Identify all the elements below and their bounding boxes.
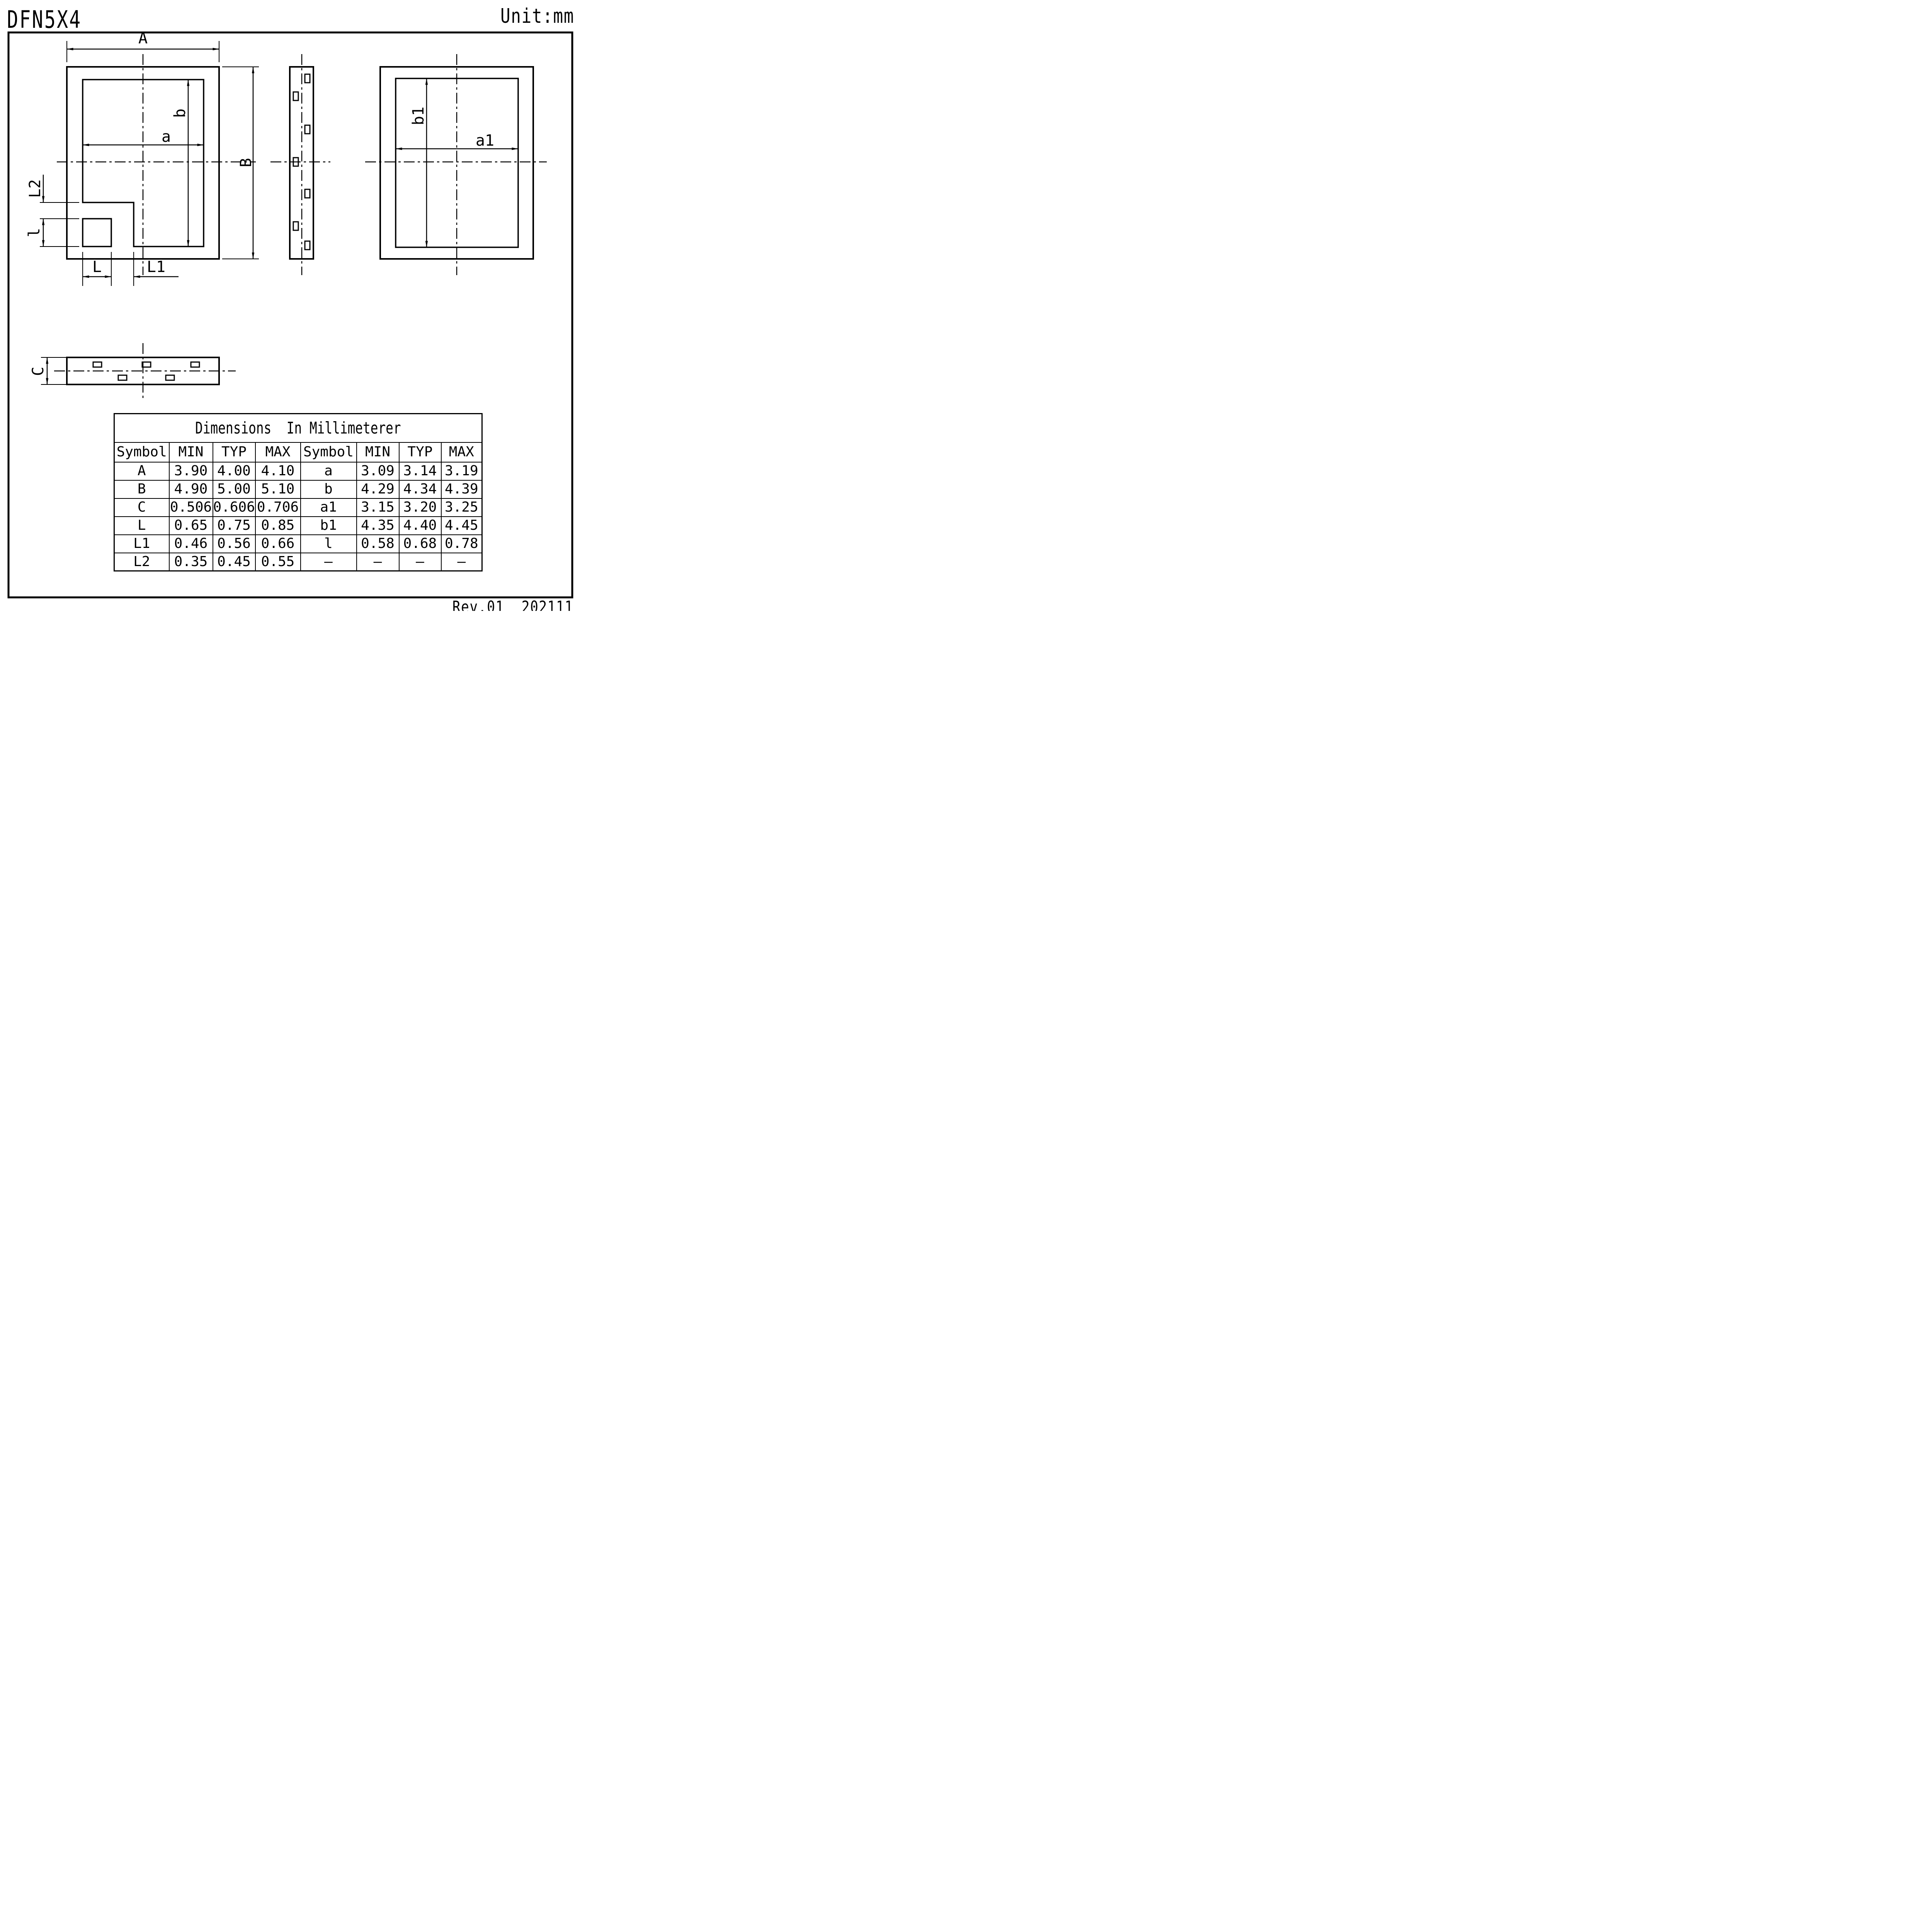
- table-cell: 0.45: [213, 553, 255, 571]
- terminal-pad: [305, 241, 310, 250]
- dimensions-table: Dimensions In Millimeterer Symbol MIN TY…: [114, 413, 481, 571]
- table-cell: 3.19: [441, 462, 482, 480]
- col-header-symbol: Symbol: [114, 442, 169, 462]
- table-cell: 4.40: [399, 517, 441, 535]
- table-cell: 0.78: [441, 535, 482, 553]
- top-view: [40, 41, 259, 286]
- table-cell: 0.606: [213, 498, 255, 517]
- dim-label-L: L: [92, 258, 102, 276]
- table-cell: 0.46: [169, 535, 213, 553]
- dim-label-B: B: [237, 158, 255, 167]
- table-cell: 4.00: [213, 462, 255, 480]
- table-cell: 4.35: [357, 517, 399, 535]
- drawing-sheet: DFN5X4 Unit:mm: [0, 0, 582, 611]
- dim-label-b1: b1: [410, 107, 427, 125]
- dim-label-L1: L1: [147, 258, 165, 276]
- table-row: A 3.90 4.00 4.10 a 3.09 3.14 3.19: [114, 462, 482, 480]
- terminal-pad: [142, 362, 151, 367]
- dim-label-C: C: [29, 367, 47, 376]
- table-cell: 4.34: [399, 480, 441, 498]
- dim-label-a1: a1: [476, 132, 494, 150]
- table-cell: 3.15: [357, 498, 399, 517]
- table-cell: 4.29: [357, 480, 399, 498]
- thermal-pad: [396, 78, 518, 247]
- terminal-pad: [118, 375, 127, 380]
- table-title-row: Dimensions In Millimeterer: [114, 414, 482, 442]
- terminal-pad: [166, 375, 174, 380]
- col-header-max: MAX: [255, 442, 301, 462]
- table-cell: b: [301, 480, 357, 498]
- table-cell: 0.706: [255, 498, 301, 517]
- table-cell: A: [114, 462, 169, 480]
- table-cell: 3.90: [169, 462, 213, 480]
- table-cell: 3.14: [399, 462, 441, 480]
- exposed-pad: [83, 80, 204, 247]
- table-cell: 0.56: [213, 535, 255, 553]
- col-header-min: MIN: [357, 442, 399, 462]
- terminal-pad: [305, 189, 310, 198]
- table-cell: L: [114, 517, 169, 535]
- table-cell: L2: [114, 553, 169, 571]
- table-cell: –: [357, 553, 399, 571]
- terminal-pad: [191, 362, 199, 367]
- col-header-typ: TYP: [399, 442, 441, 462]
- revision-label: Rev.01 202111: [452, 597, 573, 611]
- table-title: Dimensions In Millimeterer: [114, 414, 482, 442]
- col-header-typ: TYP: [213, 442, 255, 462]
- terminal-pad: [93, 362, 102, 367]
- col-header-min: MIN: [169, 442, 213, 462]
- table-cell: l: [301, 535, 357, 553]
- table-cell: 0.35: [169, 553, 213, 571]
- table-cell: a: [301, 462, 357, 480]
- table-cell: 4.10: [255, 462, 301, 480]
- table-cell: 4.39: [441, 480, 482, 498]
- front-view: [41, 343, 236, 399]
- table-cell: 5.10: [255, 480, 301, 498]
- table-cell: 4.45: [441, 517, 482, 535]
- col-header-symbol: Symbol: [301, 442, 357, 462]
- table-cell: 0.68: [399, 535, 441, 553]
- terminal-pad: [293, 222, 298, 230]
- table-row: B 4.90 5.00 5.10 b 4.29 4.34 4.39: [114, 480, 482, 498]
- table-cell: C: [114, 498, 169, 517]
- table-row: L1 0.46 0.56 0.66 l 0.58 0.68 0.78: [114, 535, 482, 553]
- table-row: L2 0.35 0.45 0.55 – – – –: [114, 553, 482, 571]
- table-cell: 0.55: [255, 553, 301, 571]
- table-cell: 3.20: [399, 498, 441, 517]
- table-cell: 3.25: [441, 498, 482, 517]
- table-header-row: Symbol MIN TYP MAX Symbol MIN TYP MAX: [114, 442, 482, 462]
- dim-label-L2: L2: [26, 179, 44, 198]
- dim-label-b: b: [171, 109, 189, 118]
- table-cell: 4.90: [169, 480, 213, 498]
- table-cell: b1: [301, 517, 357, 535]
- table-cell: B: [114, 480, 169, 498]
- table-row: L 0.65 0.75 0.85 b1 4.35 4.40 4.45: [114, 517, 482, 535]
- table-cell: 0.85: [255, 517, 301, 535]
- table-cell: L1: [114, 535, 169, 553]
- dim-label-l: l: [26, 228, 43, 237]
- table-cell: 5.00: [213, 480, 255, 498]
- table-cell: 3.09: [357, 462, 399, 480]
- table-cell: 0.66: [255, 535, 301, 553]
- dim-label-a: a: [162, 128, 171, 146]
- terminal-pad: [305, 74, 310, 83]
- table-row: C 0.506 0.606 0.706 a1 3.15 3.20 3.25: [114, 498, 482, 517]
- terminal-pad: [293, 92, 298, 100]
- table-cell: 0.506: [169, 498, 213, 517]
- terminal-pad: [305, 125, 310, 134]
- table-cell: 0.65: [169, 517, 213, 535]
- table-cell: –: [301, 553, 357, 571]
- dim-label-A: A: [138, 29, 148, 47]
- corner-pad: [83, 219, 111, 247]
- col-header-max: MAX: [441, 442, 482, 462]
- side-view: [270, 54, 330, 275]
- table-cell: 0.75: [213, 517, 255, 535]
- table-cell: 0.58: [357, 535, 399, 553]
- table-cell: a1: [301, 498, 357, 517]
- bottom-face-view: [365, 54, 547, 275]
- table-cell: –: [399, 553, 441, 571]
- table-cell: –: [441, 553, 482, 571]
